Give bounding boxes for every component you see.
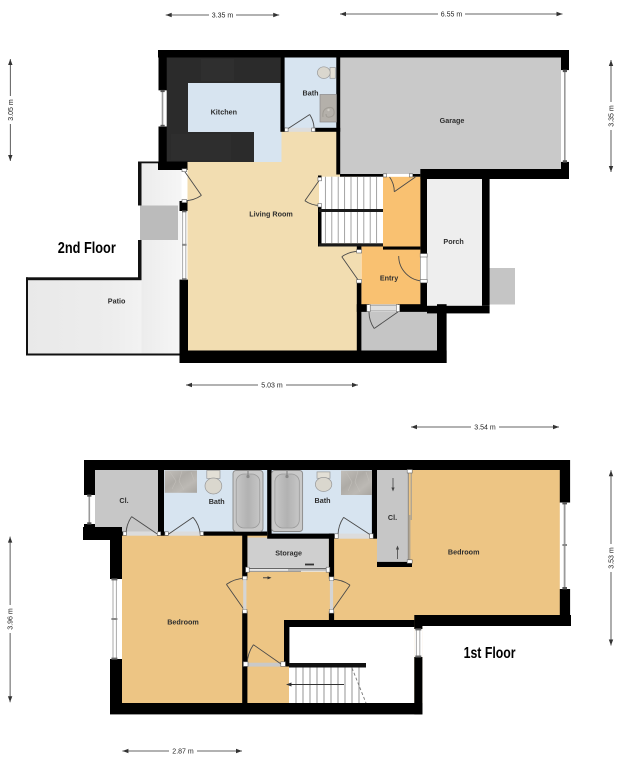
- svg-text:2nd Floor: 2nd Floor: [58, 240, 116, 257]
- svg-text:6.55 m: 6.55 m: [441, 12, 463, 19]
- svg-text:3.96 m: 3.96 m: [8, 608, 15, 630]
- svg-text:Bath: Bath: [303, 89, 319, 98]
- svg-text:Patio: Patio: [108, 296, 126, 305]
- svg-text:Garage: Garage: [440, 116, 465, 125]
- svg-text:3.05 m: 3.05 m: [8, 99, 15, 121]
- svg-text:3.53 m: 3.53 m: [609, 547, 616, 569]
- svg-text:Bath: Bath: [209, 497, 225, 506]
- svg-text:Bedroom: Bedroom: [167, 618, 199, 627]
- svg-text:Storage: Storage: [275, 549, 302, 558]
- svg-text:3.54 m: 3.54 m: [474, 425, 496, 432]
- svg-text:3.35 m: 3.35 m: [212, 13, 234, 20]
- svg-text:3.35 m: 3.35 m: [609, 105, 616, 127]
- svg-text:2.87 m: 2.87 m: [172, 749, 194, 756]
- svg-text:Kitchen: Kitchen: [211, 107, 237, 116]
- svg-text:Entry: Entry: [380, 274, 398, 283]
- svg-text:Cl.: Cl.: [388, 513, 397, 522]
- svg-text:1st Floor: 1st Floor: [464, 645, 516, 662]
- svg-text:Living Room: Living Room: [249, 209, 293, 218]
- svg-text:Bath: Bath: [315, 496, 331, 505]
- svg-text:5.03 m: 5.03 m: [261, 383, 283, 390]
- svg-text:Porch: Porch: [443, 237, 463, 246]
- svg-text:Bedroom: Bedroom: [448, 548, 480, 557]
- svg-text:Cl.: Cl.: [119, 496, 128, 505]
